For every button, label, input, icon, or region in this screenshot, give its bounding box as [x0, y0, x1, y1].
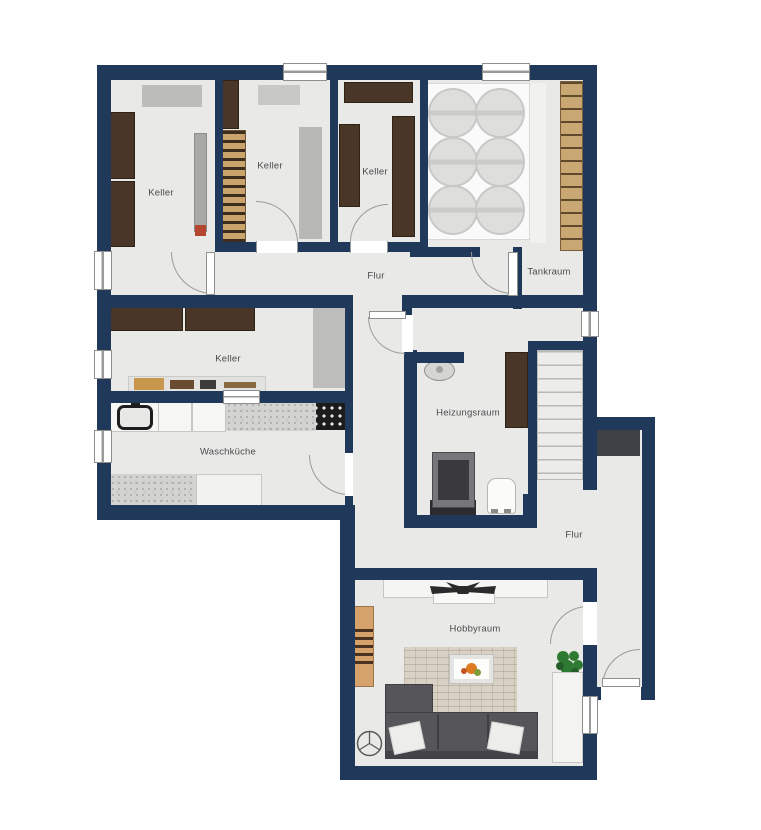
door-opening	[583, 602, 597, 645]
tank-foot	[504, 509, 511, 513]
shelf-unit	[107, 181, 135, 247]
shelf-unit	[392, 116, 415, 237]
door-opening	[256, 241, 298, 253]
window	[94, 350, 112, 379]
door-opening	[350, 241, 388, 253]
tank	[475, 88, 525, 138]
wall-hobby-bottom	[340, 766, 597, 780]
wine-shelf-rows	[355, 629, 373, 669]
wall-keller-wasch	[260, 391, 352, 403]
window	[94, 251, 112, 290]
room-label-keller-top-middle: Keller	[257, 161, 283, 172]
workbench-tool	[170, 380, 194, 389]
wine-rack	[221, 130, 246, 249]
laundry-sink	[117, 405, 153, 430]
sofa-seam	[437, 714, 439, 750]
tank	[475, 185, 525, 235]
floor-fan-icon	[356, 730, 383, 757]
pass-through-opening	[223, 390, 260, 404]
door-leaf	[369, 311, 406, 319]
chimney-block	[299, 127, 322, 239]
wall-stair-stub	[523, 494, 537, 528]
room-label-tankraum: Tankraum	[527, 267, 570, 278]
room-label-flur-lower: Flur	[565, 530, 582, 541]
room-label-flur-upper: Flur	[367, 271, 384, 282]
wall-outer-right	[583, 65, 597, 421]
basin-drain	[436, 366, 443, 373]
wall-hobby-right	[583, 645, 597, 697]
floor-mat	[196, 474, 262, 506]
door-opening	[345, 453, 353, 496]
window	[283, 63, 327, 81]
workbench-tool	[134, 378, 164, 390]
wall-flur-bottom-right	[402, 295, 597, 308]
wall-tank-bottom	[410, 247, 480, 257]
console-table	[552, 672, 583, 763]
shelf-unit	[339, 124, 360, 207]
door-opening	[601, 687, 641, 700]
workbench-tool	[200, 380, 216, 389]
window	[94, 430, 112, 463]
wine-shelf	[354, 606, 374, 687]
wall-corridor-left	[345, 295, 353, 455]
shelf-unit	[344, 82, 413, 103]
room-label-waschkueche: Waschküche	[200, 447, 256, 458]
shelf-unit	[221, 80, 239, 129]
door-leaf	[206, 252, 215, 295]
wall-hobby-top	[340, 568, 597, 580]
storage-box	[142, 85, 202, 107]
wall-keller1-right	[215, 65, 223, 252]
tank	[475, 137, 525, 187]
wall-keller-wasch	[97, 391, 223, 403]
tank	[428, 185, 478, 235]
ceiling-fan-icon	[428, 580, 498, 598]
window	[581, 311, 599, 337]
room-label-hobbyraum: Hobbyraum	[450, 624, 501, 635]
wall-entry-left	[583, 417, 597, 490]
wall-kellers-bottom	[298, 242, 352, 252]
wall-heiz-left	[404, 350, 417, 522]
faucet	[131, 403, 140, 407]
floor-mat	[110, 474, 196, 506]
wall-corridor-left	[345, 495, 353, 521]
pillow	[487, 721, 524, 754]
shelf-unit	[505, 352, 528, 428]
wall-heiz-bottom	[404, 515, 537, 528]
window	[582, 696, 598, 734]
pipe-radiator	[194, 133, 207, 232]
counter-stone	[226, 402, 316, 431]
room-label-keller-top-left: Keller	[148, 188, 174, 199]
door-leaf	[602, 678, 640, 687]
shelf-unit	[110, 306, 183, 331]
wall-kellers-bottom	[223, 242, 258, 252]
staircase	[537, 350, 583, 480]
window	[482, 63, 530, 81]
door-opening	[402, 315, 413, 352]
fruit	[474, 669, 481, 676]
storage-box	[258, 85, 300, 105]
wood-step-shelf	[560, 81, 583, 251]
doormat	[590, 430, 640, 456]
wall-hobby-left	[340, 505, 355, 780]
shelf-unit	[107, 112, 135, 179]
washing-machine	[158, 401, 192, 432]
tank	[428, 88, 478, 138]
hob-unit	[316, 400, 346, 430]
room-label-keller-middle: Keller	[215, 354, 241, 365]
wall-waschkueche-bottom	[97, 505, 355, 520]
boiler-front	[438, 460, 469, 500]
room-label-heizungsraum: Heizungsraum	[436, 408, 500, 419]
floor-plan: Keller Keller Keller Tankraum Flur Kelle…	[0, 0, 761, 830]
tank	[428, 137, 478, 187]
chimney-block	[313, 308, 345, 388]
workbench-tool	[224, 382, 256, 388]
wall-keller2-right	[330, 65, 338, 251]
wall-heiz-top	[404, 352, 464, 363]
fruit	[461, 668, 467, 674]
wall-entry-right	[642, 417, 655, 700]
wall-stair-left	[528, 341, 537, 494]
wall-keller3-right	[420, 65, 428, 251]
washing-machine	[192, 401, 226, 432]
tank-platform-edge	[530, 83, 546, 243]
door-leaf	[508, 252, 518, 296]
valve-red	[195, 225, 206, 236]
room-label-keller-top-right: Keller	[362, 167, 388, 178]
wall-flur-bottom-left	[97, 295, 353, 308]
wall-hobby-right	[583, 733, 597, 780]
shelf-unit	[185, 306, 255, 331]
tank-foot	[491, 509, 498, 513]
